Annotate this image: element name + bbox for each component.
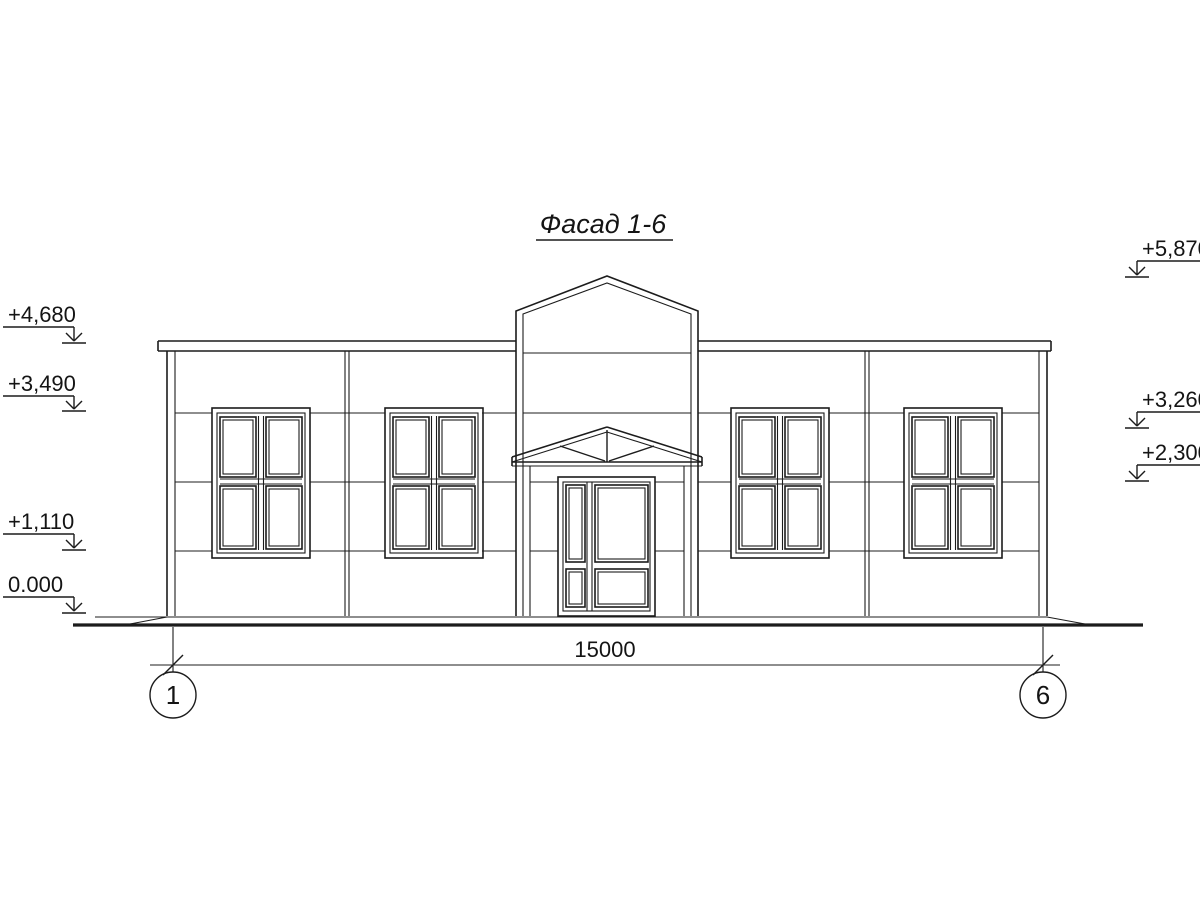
axis-bubble-6: 6 — [1020, 672, 1066, 718]
dimension-assembly: 15000 1 6 — [150, 627, 1066, 718]
elevation-mark-3260: +3,260 — [1125, 387, 1200, 428]
window-4 — [904, 408, 1002, 558]
elevation-value: +3,260 — [1142, 387, 1200, 412]
elevation-value: +5,870 — [1142, 236, 1200, 261]
fascia-band — [158, 341, 1051, 351]
canopy-strut-left — [560, 446, 605, 461]
elevation-mark-4680: +4,680 — [3, 302, 86, 343]
axis-bubble-1: 1 — [150, 672, 196, 718]
dimension-value: 15000 — [574, 637, 635, 662]
facade-elevation-canvas: Фасад 1-6 — [0, 0, 1200, 900]
facade-drawing-sheet: Фасад 1-6 — [0, 0, 1200, 900]
base-and-ground — [73, 617, 1143, 625]
axis-label-1: 1 — [166, 680, 180, 710]
entrance-door — [558, 477, 655, 616]
door-outer-frame — [558, 477, 655, 616]
elevation-value: +1,110 — [8, 509, 74, 534]
door-leaf-panel — [595, 569, 648, 607]
elevation-mark-0000: 0.000 — [3, 572, 86, 613]
elevation-value: 0.000 — [8, 572, 63, 597]
elevation-value: +2,300 — [1142, 440, 1200, 465]
left-wall-corner — [167, 351, 175, 616]
entrance-canopy — [512, 427, 702, 616]
window-2 — [385, 408, 483, 558]
panel-seam-right — [865, 351, 869, 616]
window-1 — [212, 408, 310, 558]
elevation-mark-3490: +3,490 — [3, 371, 86, 411]
elevation-value: +3,490 — [8, 371, 76, 396]
elevation-mark-5870: +5,870 — [1125, 236, 1200, 277]
drawing-title: Фасад 1-6 — [536, 209, 673, 240]
door-inner-frame — [563, 482, 650, 611]
door-leaf-glazing — [595, 485, 648, 562]
right-wall-corner — [1039, 351, 1047, 616]
ramp-edge-right — [1047, 617, 1085, 624]
elevation-value: +4,680 — [8, 302, 76, 327]
elevation-mark-2300: +2,300 — [1125, 440, 1200, 481]
elevation-mark-1110: +1,110 — [3, 509, 86, 550]
window-3 — [731, 408, 829, 558]
drawing-title-text: Фасад 1-6 — [540, 209, 667, 239]
axis-label-6: 6 — [1036, 680, 1050, 710]
panel-seam-left — [345, 351, 349, 616]
ramp-edge-left — [130, 617, 167, 624]
canopy-strut-right — [609, 446, 654, 461]
